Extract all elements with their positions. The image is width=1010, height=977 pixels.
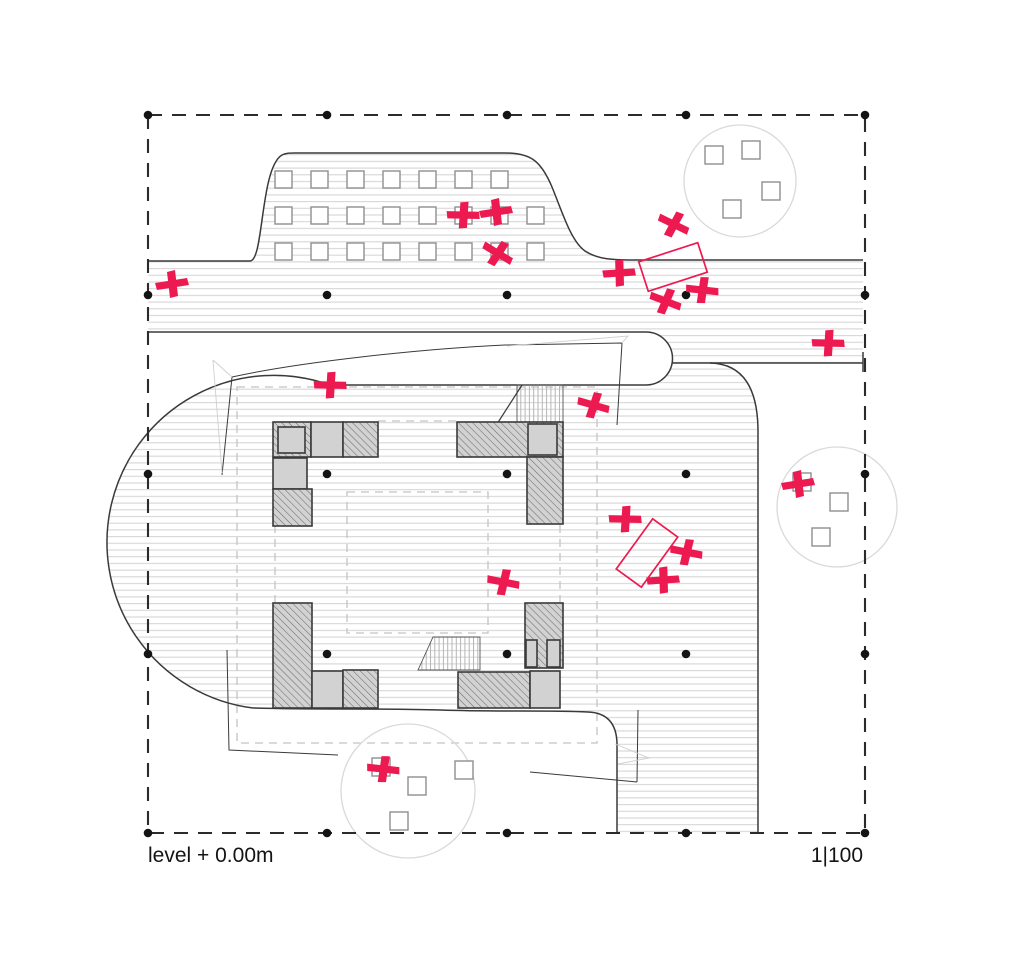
paver-square bbox=[383, 171, 400, 188]
site-plan-canvas: level + 0.00m 1|100 bbox=[0, 0, 1010, 977]
grid-dot bbox=[861, 291, 870, 300]
layer-ground-hatch bbox=[107, 153, 863, 833]
paver-square bbox=[419, 207, 436, 224]
plaza-bottom-edge bbox=[253, 708, 617, 833]
grid-dot bbox=[682, 650, 691, 659]
plaza-hatch-area bbox=[107, 153, 863, 833]
paver-square bbox=[419, 243, 436, 260]
grid-dot bbox=[323, 829, 332, 838]
grid-dot bbox=[503, 829, 512, 838]
paver-square bbox=[455, 761, 473, 779]
grid-dot bbox=[323, 650, 332, 659]
tree bbox=[341, 724, 475, 858]
grid-dot bbox=[144, 111, 153, 120]
architectural-site-plan: level + 0.00m 1|100 bbox=[0, 0, 1010, 977]
level-label: level + 0.00m bbox=[148, 844, 274, 867]
paver-square bbox=[347, 171, 364, 188]
grid-dot bbox=[861, 470, 870, 479]
grid-dot bbox=[503, 470, 512, 479]
tree bbox=[777, 447, 897, 567]
person-marker-bar bbox=[661, 210, 686, 239]
wall-segment bbox=[278, 427, 305, 453]
wall-segment-hatched bbox=[343, 422, 378, 457]
paver-square bbox=[527, 243, 544, 260]
paver-square bbox=[383, 207, 400, 224]
grid-dot bbox=[503, 650, 512, 659]
paver-square bbox=[419, 171, 436, 188]
wall-segment bbox=[311, 422, 343, 457]
paver-square bbox=[455, 171, 472, 188]
person-marker bbox=[652, 203, 696, 245]
wall-segment-hatched bbox=[273, 603, 312, 708]
paver-square bbox=[830, 493, 848, 511]
scale-label: 1|100 bbox=[811, 844, 863, 867]
paver-square bbox=[812, 528, 830, 546]
paver-square bbox=[311, 171, 328, 188]
wall-segment bbox=[526, 640, 537, 667]
paver-square bbox=[275, 171, 292, 188]
wall-segment-hatched bbox=[273, 489, 312, 526]
paver-square bbox=[347, 243, 364, 260]
grid-dot bbox=[323, 470, 332, 479]
grid-dot bbox=[144, 829, 153, 838]
paver-square bbox=[311, 207, 328, 224]
tree-canopy bbox=[684, 125, 796, 237]
tree bbox=[684, 125, 796, 237]
paver-square bbox=[723, 200, 741, 218]
paver-square bbox=[491, 171, 508, 188]
stair-top bbox=[517, 385, 563, 423]
paver-square bbox=[347, 207, 364, 224]
grid-dot bbox=[144, 650, 153, 659]
grid-dot bbox=[503, 111, 512, 120]
grid-dot bbox=[323, 291, 332, 300]
paver-square bbox=[311, 243, 328, 260]
person-marker bbox=[363, 751, 403, 787]
grid-dot bbox=[144, 291, 153, 300]
grid-dot bbox=[682, 111, 691, 120]
grid-dot bbox=[682, 470, 691, 479]
wall-segment-hatched bbox=[458, 672, 530, 708]
paver-square bbox=[742, 141, 760, 159]
grid-dot bbox=[144, 470, 153, 479]
paver-square bbox=[408, 777, 426, 795]
wall-segment bbox=[312, 671, 343, 708]
wall-segment bbox=[528, 424, 557, 455]
grid-dot bbox=[682, 829, 691, 838]
paver-square bbox=[705, 146, 723, 164]
paver-square bbox=[455, 243, 472, 260]
wall-segment bbox=[547, 640, 560, 667]
grid-dot bbox=[503, 291, 512, 300]
grid-dot bbox=[861, 111, 870, 120]
path-band-white bbox=[148, 332, 673, 385]
paver-square bbox=[383, 243, 400, 260]
grid-dot bbox=[861, 650, 870, 659]
wall-segment bbox=[530, 671, 560, 708]
paver-square bbox=[275, 207, 292, 224]
grid-dot bbox=[323, 111, 332, 120]
paver-square bbox=[527, 207, 544, 224]
paver-square bbox=[762, 182, 780, 200]
paver-square bbox=[390, 812, 408, 830]
wall-segment bbox=[273, 458, 307, 489]
wall-segment-hatched bbox=[343, 670, 378, 708]
paver-square bbox=[275, 243, 292, 260]
wall-segment-hatched bbox=[527, 457, 563, 524]
grid-dot bbox=[861, 829, 870, 838]
